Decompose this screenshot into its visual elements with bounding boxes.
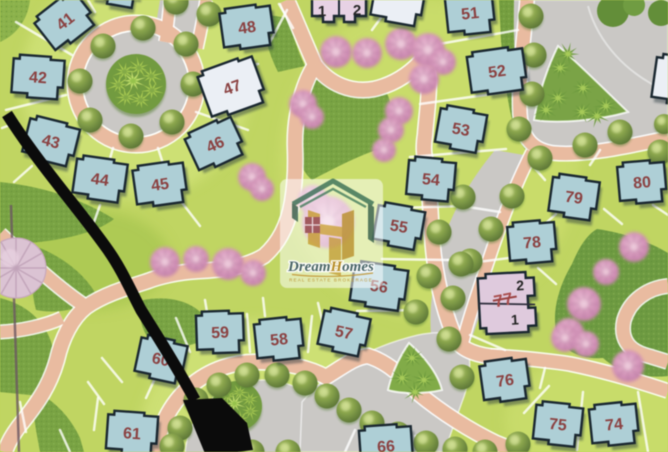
svg-text:2: 2 <box>353 2 361 19</box>
svg-text:80: 80 <box>633 174 652 192</box>
svg-text:78: 78 <box>523 234 542 252</box>
svg-text:59: 59 <box>211 324 229 342</box>
svg-text:44: 44 <box>90 171 110 190</box>
svg-text:53: 53 <box>451 120 472 140</box>
svg-text:48: 48 <box>237 19 257 38</box>
svg-text:42: 42 <box>28 69 47 87</box>
svg-text:51: 51 <box>460 5 480 24</box>
svg-text:57: 57 <box>333 323 354 343</box>
svg-text:45: 45 <box>150 176 170 195</box>
svg-text:1: 1 <box>318 3 326 20</box>
svg-text:1: 1 <box>511 311 520 327</box>
svg-text:REAL ESTATE BROKERAGE: REAL ESTATE BROKERAGE <box>289 278 373 283</box>
svg-text:55: 55 <box>389 217 410 237</box>
svg-text:79: 79 <box>564 189 584 208</box>
svg-text:75: 75 <box>548 416 568 435</box>
svg-text:76: 76 <box>495 372 515 391</box>
svg-text:61: 61 <box>122 425 141 443</box>
svg-text:DreamHomes: DreamHomes <box>287 259 374 275</box>
svg-text:74: 74 <box>604 416 624 435</box>
svg-text:66: 66 <box>377 438 396 452</box>
svg-text:2: 2 <box>516 277 525 293</box>
svg-text:58: 58 <box>269 331 289 350</box>
svg-text:54: 54 <box>421 171 440 189</box>
svg-text:52: 52 <box>487 63 507 82</box>
